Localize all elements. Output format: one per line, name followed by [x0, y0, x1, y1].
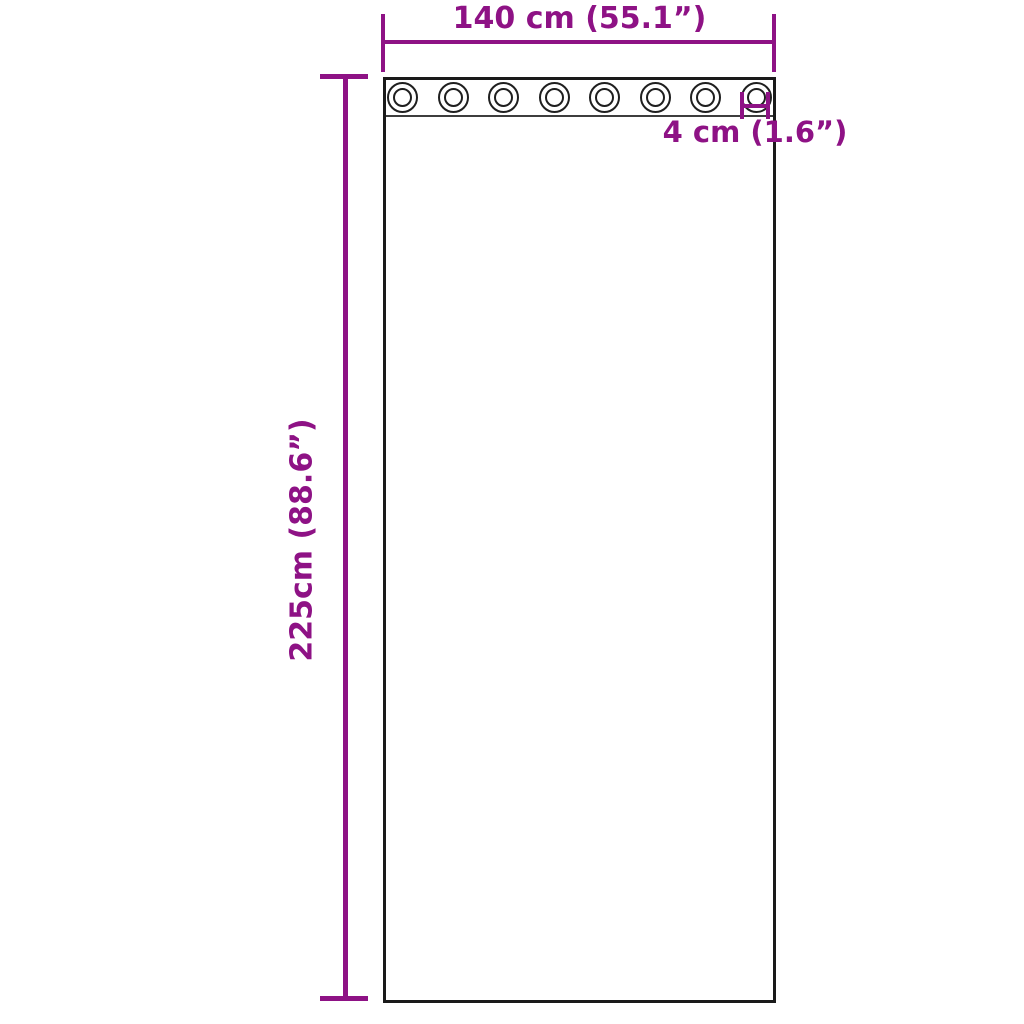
height-dimension-label: 225cm (88.6”): [285, 418, 320, 661]
grommet-diameter-line: [740, 104, 770, 108]
grommet-eyelet: [539, 82, 570, 113]
width-dimension-label: 140 cm (55.1”): [383, 1, 776, 36]
grommet-eyelet: [438, 82, 469, 113]
grommet-inner-ring: [595, 88, 614, 107]
height-dimension-top-tick: [320, 74, 368, 79]
grommet-eyelet: [488, 82, 519, 113]
grommet-diameter-label: 4 cm (1.6”): [663, 115, 848, 149]
width-dimension-line: [381, 40, 776, 44]
grommet-eyelet: [589, 82, 620, 113]
grommet-eyelet: [387, 82, 418, 113]
diagram-canvas: 140 cm (55.1”) 225cm (88.6”) 4 cm (1.6”): [0, 0, 1024, 1024]
grommet-eyelet: [690, 82, 721, 113]
grommet-inner-ring: [696, 88, 715, 107]
grommet-inner-ring: [646, 88, 665, 107]
grommet-band: [386, 80, 773, 117]
grommet-inner-ring: [494, 88, 513, 107]
height-dimension-bottom-tick: [320, 996, 368, 1001]
curtain-panel: [383, 77, 776, 1003]
grommet-inner-ring: [393, 88, 412, 107]
grommet-inner-ring: [444, 88, 463, 107]
grommet-eyelet: [640, 82, 671, 113]
height-dimension-line: [343, 76, 348, 1001]
grommet-inner-ring: [545, 88, 564, 107]
